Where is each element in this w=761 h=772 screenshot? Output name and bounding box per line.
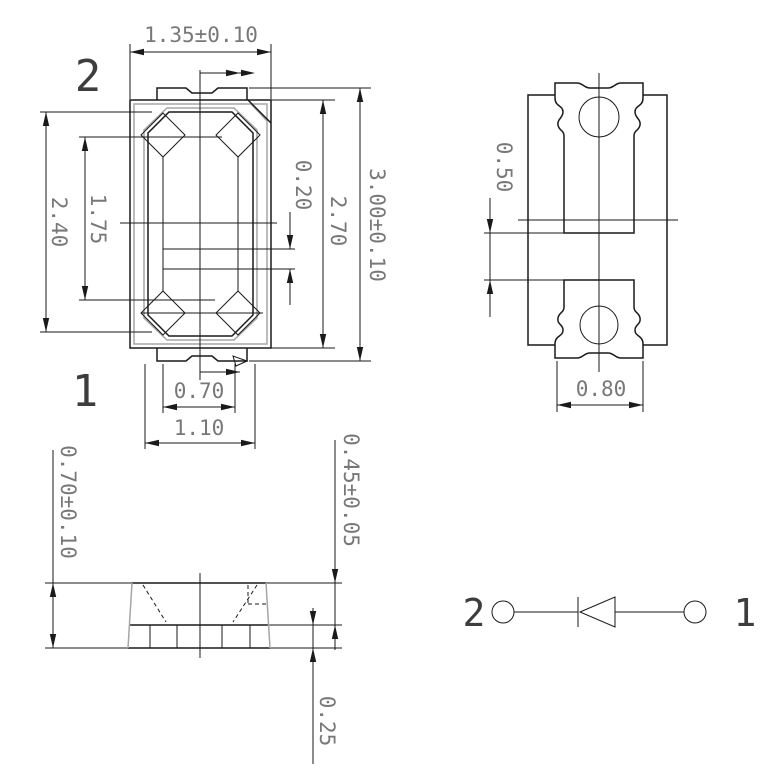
dim-total-thickness: 0.70±0.10 — [50, 445, 80, 648]
dim-inner-height: 1.75 — [79, 137, 222, 300]
drawing-canvas: 1.35±0.10 2.40 1.75 0.20 — [0, 0, 761, 772]
side-view-body — [128, 583, 270, 648]
dim-label-pad-gap: 0.50 — [492, 142, 516, 193]
dim-pad-gap: 0.50 — [484, 142, 634, 317]
side-left-edge — [128, 583, 132, 648]
top-view-body — [130, 88, 295, 361]
dim-label-reflector-height: 2.40 — [47, 197, 71, 248]
dim-upper-thickness: 0.45±0.05 — [332, 433, 363, 650]
hidden-wire-right — [233, 585, 257, 622]
dim-label-notch-width: 0.70 — [174, 379, 225, 403]
dim-label-upper-thickness: 0.45±0.05 — [339, 433, 363, 547]
terminal-1 — [684, 601, 706, 623]
dim-label-body-height: 2.70 — [326, 196, 350, 247]
pin2-label: 2 — [75, 51, 102, 102]
terminal-2 — [492, 601, 514, 623]
dim-body-height: 2.70 — [271, 100, 350, 348]
top-electrode-tab — [157, 88, 247, 100]
polarity-arrow-top — [200, 70, 255, 76]
led-outline-drawing: 1.35±0.10 2.40 1.75 0.20 — [0, 0, 761, 772]
circuit-pin1-label: 1 — [734, 591, 757, 635]
dim-total-height: 3.00±0.10 — [249, 88, 389, 361]
side-view: 0.70±0.10 0.45±0.05 0.25 — [45, 433, 363, 764]
dim-label-total-thickness: 0.70±0.10 — [56, 445, 80, 559]
pad-view: 0.50 0.80 — [484, 73, 678, 412]
dim-label-standoff: 0.25 — [315, 696, 339, 747]
side-right-edge — [266, 583, 270, 648]
dim-label-total-height: 3.00±0.10 — [365, 168, 389, 282]
dim-label-inner-height: 1.75 — [86, 194, 110, 245]
circuit-diagram: 2 1 — [463, 591, 757, 635]
dim-pad-width: 0.80 — [557, 361, 643, 412]
dim-notch-width: 0.70 — [163, 364, 235, 413]
circuit-pin2-label: 2 — [463, 591, 486, 635]
diode-triangle — [580, 597, 615, 627]
polarity-arrow-bottom — [200, 356, 247, 375]
dim-label-tab-width: 1.10 — [174, 416, 225, 440]
dim-label-width: 1.35±0.10 — [144, 23, 258, 47]
dim-label-electrode-gap: 0.20 — [291, 160, 315, 211]
hidden-wire-left — [143, 585, 166, 622]
dim-electrode-gap: 0.20 — [287, 160, 315, 305]
dim-label-pad-width: 0.80 — [576, 377, 627, 401]
pin1-label: 1 — [72, 366, 99, 417]
top-view: 1.35±0.10 2.40 1.75 0.20 — [40, 23, 389, 449]
